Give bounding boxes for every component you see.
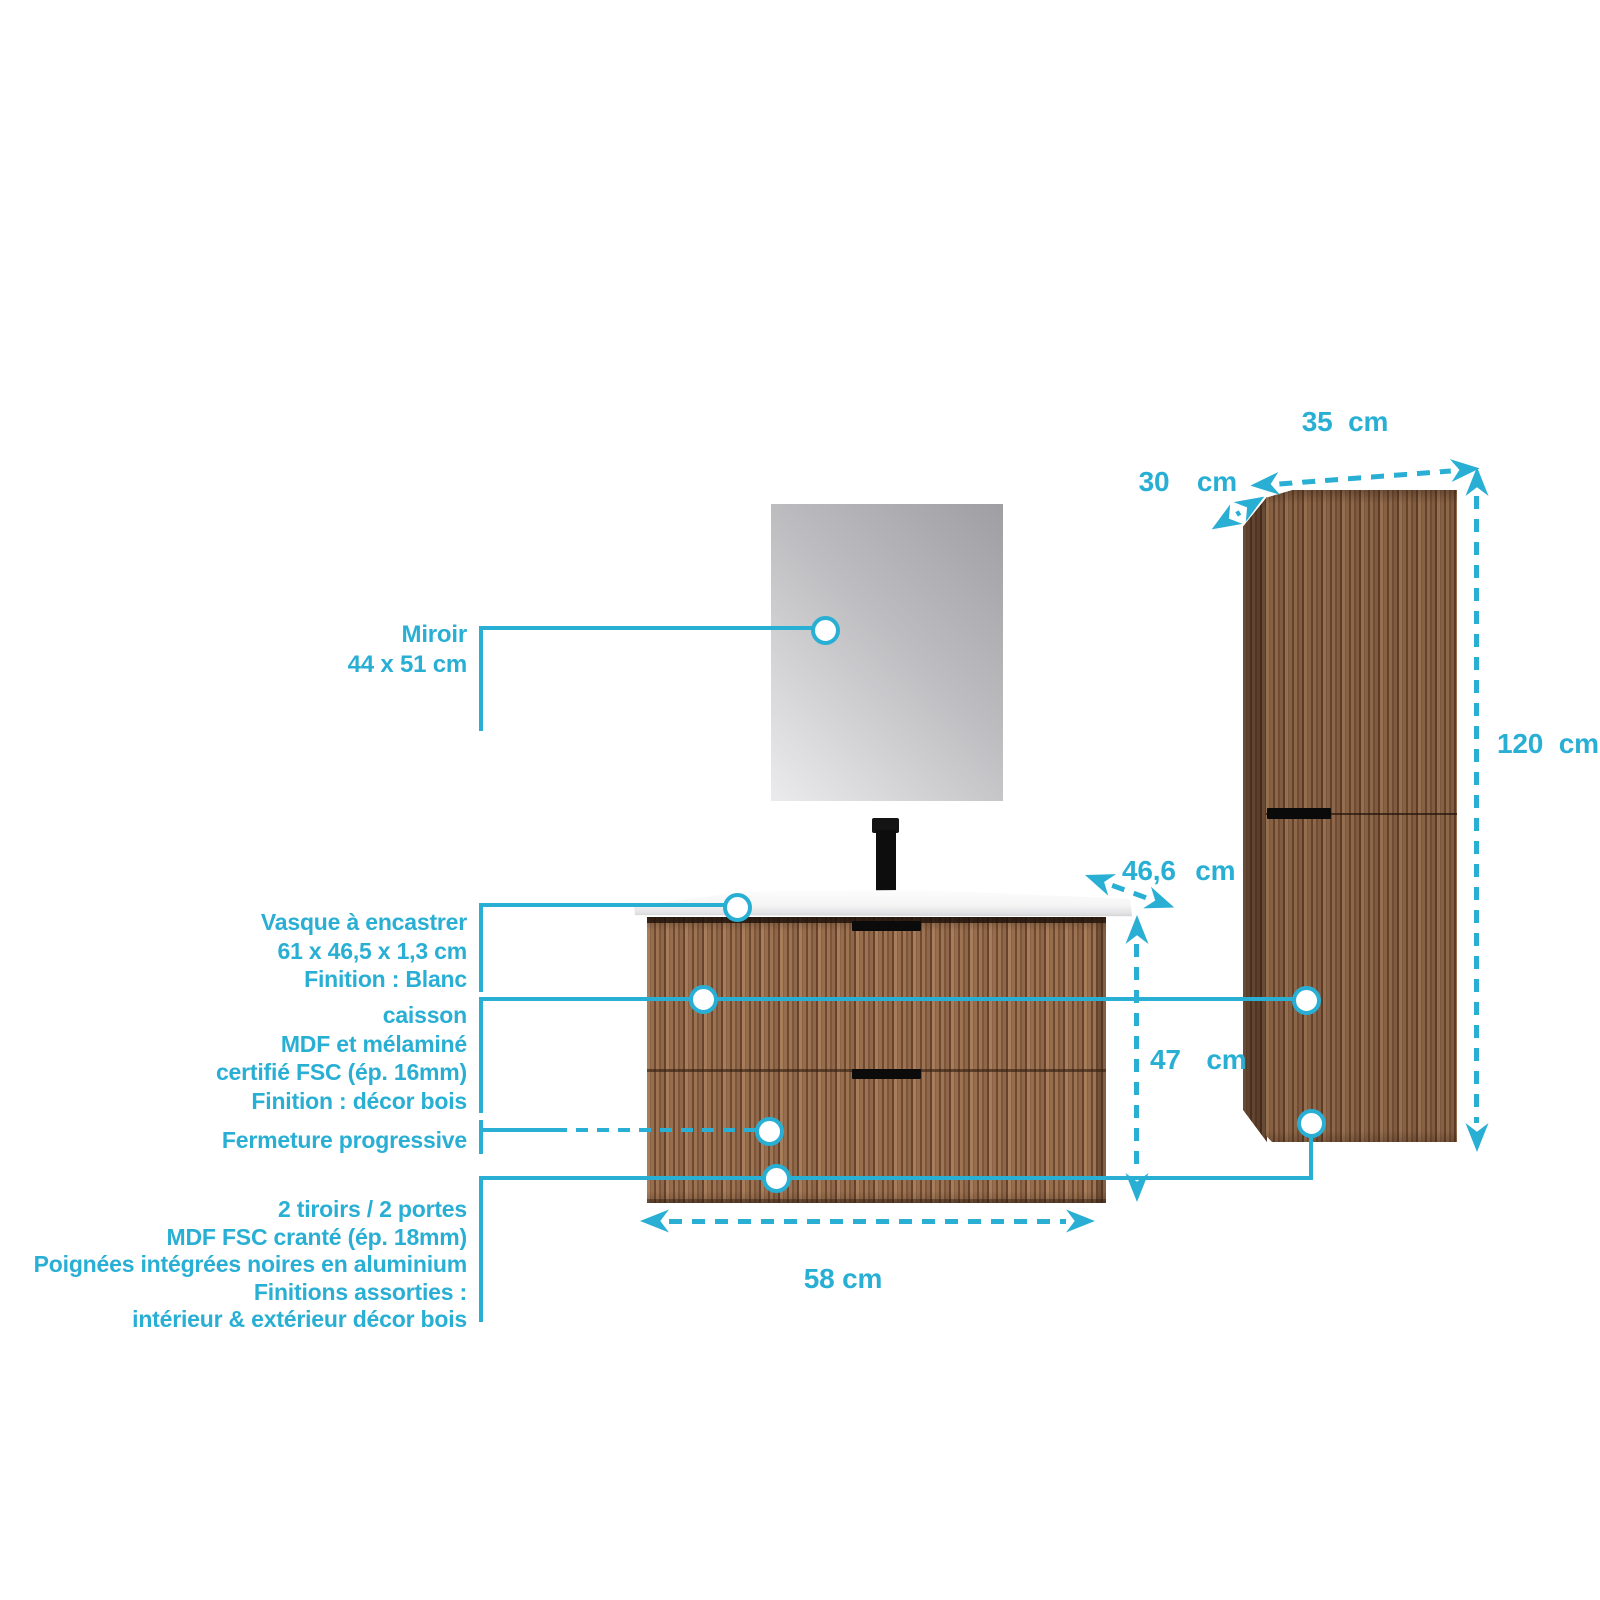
label-tiroirs-line3: Poignées intégrées noires en aluminium (0, 1251, 467, 1279)
dimension-label-vanity-width: 58 cm (743, 1263, 943, 1295)
label-tiroirs-line5: intérieur & extérieur décor bois (0, 1306, 467, 1334)
label-tiroirs-line1: 2 tiroirs / 2 portes (0, 1196, 467, 1224)
label-tiroirs-line2: MDF FSC cranté (ép. 18mm) (0, 1224, 467, 1252)
label-caisson-line4: Finition : décor bois (0, 1087, 467, 1116)
drawer-handle-bottom (852, 1069, 921, 1079)
callout-bracket-fermeture (479, 1120, 483, 1154)
dimension-label-column-depth: 30 cm (1080, 466, 1237, 498)
label-caisson-line1: caisson (0, 1001, 467, 1030)
label-vasque-line2: 61 x 46,5 x 1,3 cm (0, 937, 467, 966)
callout-bracket-caisson (479, 997, 483, 1113)
label-caisson: caisson MDF et mélaminé certifié FSC (ép… (0, 1001, 467, 1115)
dimension-label-column-height: 120 cm (1497, 728, 1599, 760)
vanity-side-shade (1096, 917, 1106, 1203)
vanity-cabinet (647, 917, 1106, 1203)
callout-marker-fermeture (755, 1117, 784, 1146)
label-fermeture: Fermeture progressive (0, 1126, 467, 1155)
label-caisson-line3: certifié FSC (ép. 16mm) (0, 1058, 467, 1087)
callout-line-miroir (481, 626, 825, 630)
column-door-handle (1267, 808, 1331, 819)
dimension-label-column-width: 35 cm (1245, 406, 1445, 438)
dimension-arrow-vanity-width (640, 1208, 1095, 1234)
label-vasque-line3: Finition : Blanc (0, 965, 467, 994)
callout-marker-caisson-column (1292, 986, 1321, 1015)
column-cabinet-side (1243, 497, 1267, 1142)
callout-line-fermeture-dashed (555, 1128, 757, 1132)
label-fermeture-line1: Fermeture progressive (0, 1126, 467, 1155)
callout-line-caisson (481, 997, 1306, 1001)
label-tiroirs: 2 tiroirs / 2 portes MDF FSC cranté (ép.… (0, 1196, 467, 1334)
column-door-top (1266, 490, 1457, 815)
callout-bracket-tiroirs (479, 1176, 483, 1322)
label-tiroirs-line4: Finitions assorties : (0, 1279, 467, 1307)
callout-line-tiroirs (481, 1176, 1313, 1180)
callout-marker-tiroirs-column (1297, 1109, 1326, 1138)
dimension-arrow-vanity-height (1124, 915, 1150, 1202)
label-miroir: Miroir 44 x 51 cm (0, 620, 467, 680)
vanity-bottom-shade (647, 1199, 1106, 1203)
mirror (771, 504, 1003, 801)
drawer-handle-top (852, 921, 921, 931)
callout-line-vasque (481, 903, 737, 907)
callout-marker-caisson-vanity (689, 985, 718, 1014)
callout-marker-tiroirs-vanity (762, 1164, 791, 1193)
dimension-label-vanity-height: 47 cm (1150, 1044, 1246, 1076)
label-vasque: Vasque à encastrer 61 x 46,5 x 1,3 cm Fi… (0, 908, 467, 994)
callout-bracket-miroir (479, 626, 483, 731)
label-vasque-line1: Vasque à encastrer (0, 908, 467, 937)
label-miroir-line2: 44 x 51 cm (0, 650, 467, 680)
callout-marker-mirror (811, 616, 840, 645)
callout-bracket-vasque (479, 903, 483, 992)
callout-line-fermeture-stub (481, 1128, 555, 1132)
label-miroir-line1: Miroir (0, 620, 467, 650)
column-door-bottom (1266, 815, 1457, 1142)
dimension-arrow-column-height (1464, 467, 1490, 1152)
callout-marker-washbasin (723, 893, 752, 922)
product-dimension-diagram: 35 cm 30 cm 120 cm 46,6 cm 47 cm 58 cm M… (0, 0, 1600, 1600)
vanity-drawer-bottom (647, 1072, 1106, 1203)
faucet-body (876, 830, 896, 898)
label-caisson-line2: MDF et mélaminé (0, 1030, 467, 1059)
